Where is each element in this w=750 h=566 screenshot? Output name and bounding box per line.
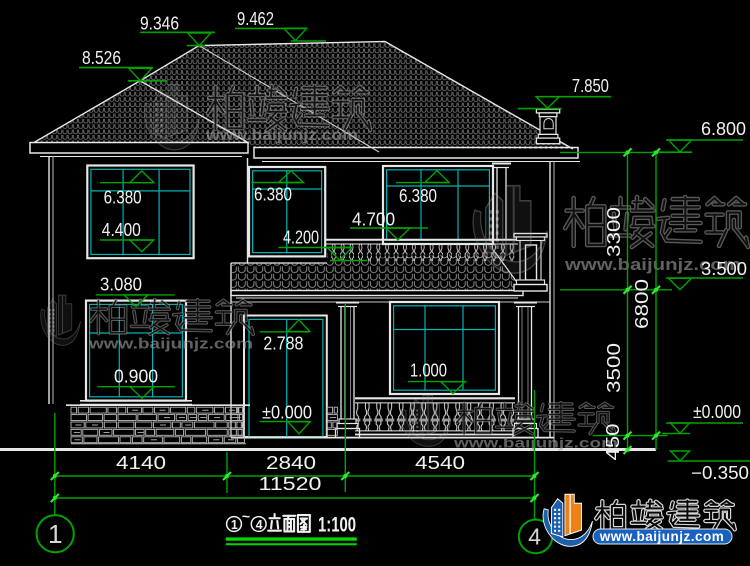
svg-text:±0.000: ±0.000	[262, 403, 312, 423]
svg-text:6.380: 6.380	[254, 185, 292, 205]
svg-text:4140: 4140	[116, 452, 166, 473]
svg-text:0.900: 0.900	[114, 367, 158, 387]
svg-text:6.380: 6.380	[104, 188, 142, 208]
svg-text:9.462: 9.462	[237, 9, 274, 29]
svg-text:1: 1	[48, 519, 62, 549]
svg-text:3300: 3300	[603, 207, 624, 257]
svg-text:4.400: 4.400	[102, 220, 141, 240]
svg-text:450: 450	[602, 424, 623, 461]
svg-text:8.526: 8.526	[82, 48, 121, 68]
svg-text:4: 4	[528, 524, 541, 550]
svg-text:2.788: 2.788	[263, 334, 303, 354]
svg-text:1: 1	[231, 518, 238, 532]
svg-text:9.346: 9.346	[140, 14, 179, 34]
svg-text:3.080: 3.080	[100, 275, 142, 295]
svg-text:3.500: 3.500	[701, 259, 747, 279]
svg-text:6800: 6800	[631, 279, 652, 329]
svg-text:1.000: 1.000	[410, 361, 447, 381]
svg-text:−0.350: −0.350	[691, 463, 749, 483]
svg-text:www.baijunjz.com: www.baijunjz.com	[205, 127, 358, 144]
svg-text:11520: 11520	[259, 473, 322, 494]
svg-text:±0.000: ±0.000	[693, 402, 741, 422]
svg-text:4540: 4540	[415, 452, 465, 473]
svg-text:7.850: 7.850	[572, 76, 609, 96]
svg-text:4.200: 4.200	[283, 227, 319, 247]
svg-text:2840: 2840	[266, 452, 316, 473]
svg-text:www.baijunjz.com: www.baijunjz.com	[88, 337, 253, 353]
svg-text:4: 4	[256, 518, 263, 532]
svg-text:4.700: 4.700	[352, 210, 395, 230]
svg-text:www.baijunjz.com: www.baijunjz.com	[599, 529, 725, 544]
svg-text:1:100: 1:100	[318, 514, 356, 537]
svg-text:www.baijunjz.com: www.baijunjz.com	[453, 435, 618, 451]
svg-text:~: ~	[242, 508, 250, 524]
svg-text:6.800: 6.800	[701, 119, 746, 139]
svg-text:6.380: 6.380	[399, 186, 437, 206]
svg-text:3500: 3500	[603, 343, 624, 393]
